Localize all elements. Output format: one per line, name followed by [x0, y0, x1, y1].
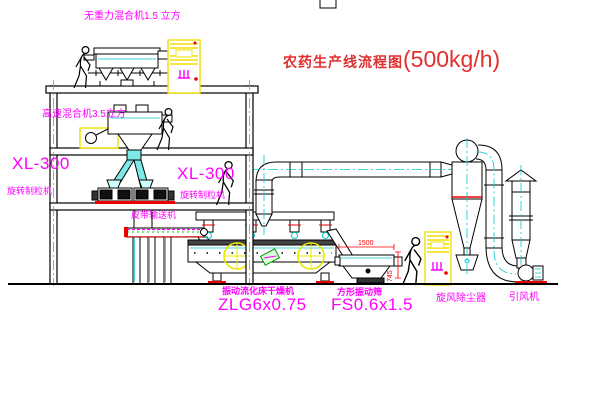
label-dryer-model: ZLG6x0.75: [218, 296, 307, 313]
label-belt-conveyor: 皮带输送机: [131, 211, 176, 220]
label-granulator-left-name: 旋转制粒机: [7, 187, 52, 196]
label-granulator-mid-model: XL-300: [177, 165, 235, 182]
person-roof: [74, 47, 90, 88]
dimension-sieve-length: 1500: [358, 240, 374, 247]
process-flow-diagram: 农药生产线流程图(500kg/h) 无重力混合机1.5 立方 高速混合机3.5立…: [0, 0, 600, 403]
page-title: 农药生产线流程图(500kg/h): [283, 46, 500, 73]
person-ground: [403, 238, 421, 286]
title-capacity: (500kg/h): [403, 46, 500, 72]
label-cyclone: 旋风除尘器: [436, 294, 486, 304]
control-cabinet-top: [168, 40, 200, 93]
label-sieve-model: FS0.6x1.5: [331, 296, 413, 313]
label-granulator-left-model: XL-300: [12, 155, 70, 172]
title-text: 农药生产线流程图: [283, 54, 403, 70]
label-gravity-mixer: 无重力混合机1.5 立方: [84, 12, 181, 22]
top-border-box: [320, 0, 336, 8]
induced-fan-drawing: [515, 265, 547, 285]
exhaust-duct: [250, 155, 468, 235]
granulator-left-drawing: [92, 180, 135, 204]
dimension-sieve-height: 745: [387, 270, 394, 282]
label-granulator-mid-name: 旋转制粒机: [180, 191, 225, 200]
control-cabinet-right: [425, 232, 451, 285]
gravity-mixer-drawing: [84, 48, 170, 86]
label-high-speed-mixer: 高速混合机3.5立方: [42, 110, 126, 120]
label-fan: 引风机: [509, 293, 539, 303]
granulator-right-drawing: [131, 180, 175, 204]
